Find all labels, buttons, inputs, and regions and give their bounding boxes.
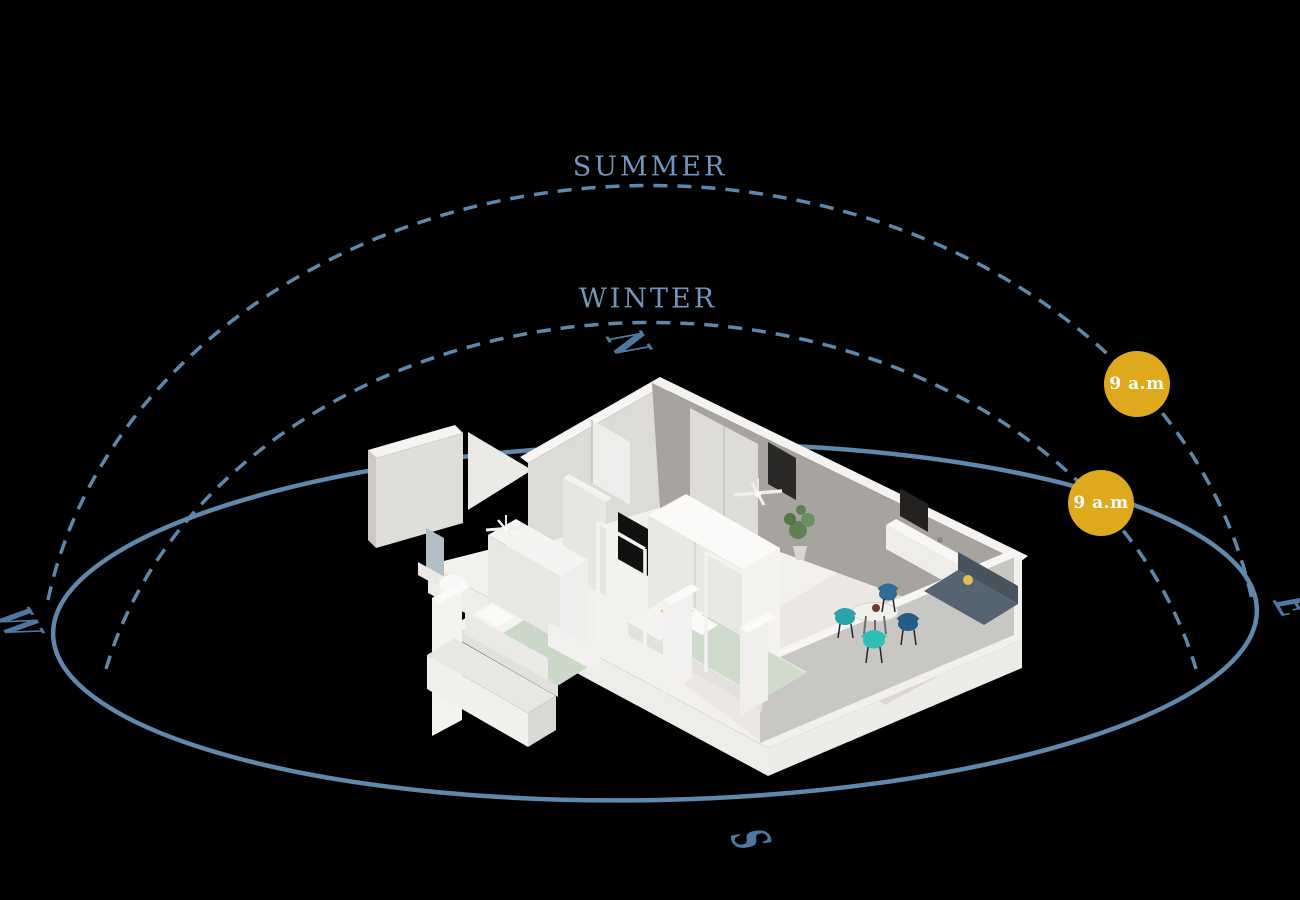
scene-svg: N S W E bbox=[0, 0, 1300, 900]
summer-sun-marker-label: 9 a.m bbox=[1109, 374, 1164, 394]
compass-west-letter: W bbox=[0, 604, 56, 642]
sun-path-diagram: N S W E bbox=[0, 0, 1300, 900]
compass-east-letter: E bbox=[1260, 591, 1300, 619]
winter-label: WINTER bbox=[579, 284, 717, 315]
winter-sun-marker-label: 9 a.m bbox=[1073, 493, 1128, 513]
summer-sun-marker: 9 a.m bbox=[1104, 351, 1170, 417]
house-render bbox=[368, 377, 1028, 776]
compass-south-letter: S bbox=[716, 825, 785, 853]
summer-label: SUMMER bbox=[573, 152, 728, 183]
winter-sun-marker: 9 a.m bbox=[1068, 470, 1134, 536]
compass-north-letter: N bbox=[593, 327, 665, 359]
